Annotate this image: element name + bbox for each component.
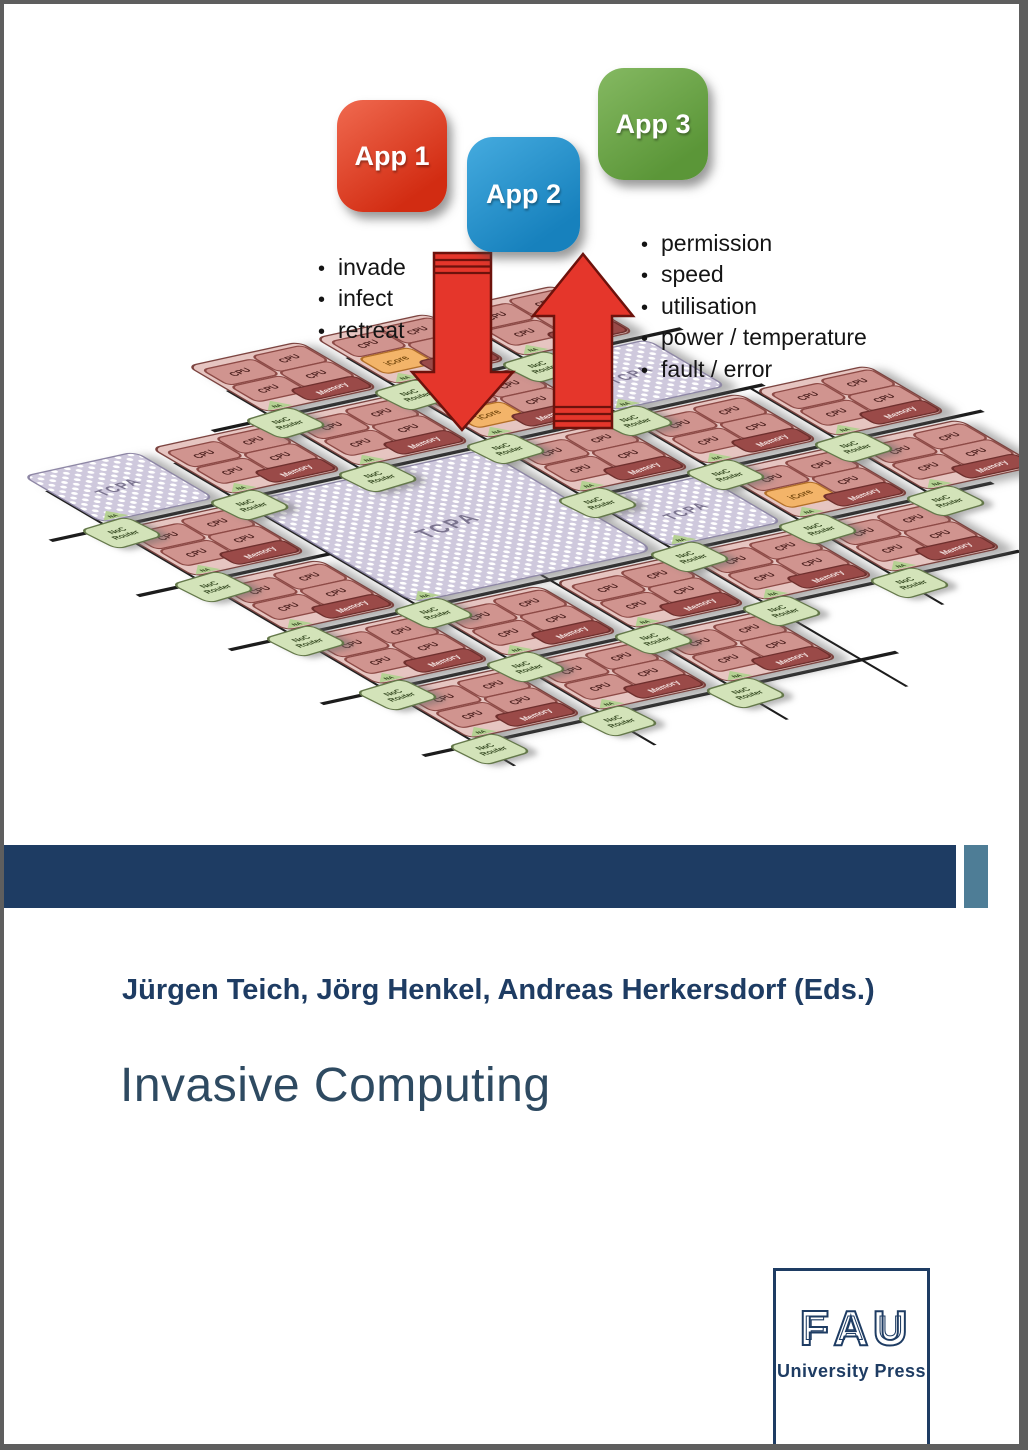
app1-label: App 1 <box>354 141 429 172</box>
app2-box: App 2 <box>467 137 580 252</box>
editors-line: Jürgen Teich, Jörg Henkel, Andreas Herke… <box>122 974 875 1007</box>
publisher-name: University Press <box>777 1361 926 1382</box>
legend-item: retreat <box>318 316 406 347</box>
noc-router: NoCRouter <box>702 676 789 710</box>
noc-router: NoCRouter <box>574 704 661 738</box>
publisher-logo-box: F A U F A U University Press <box>773 1268 930 1450</box>
tcpa-label: TCPA <box>409 511 488 542</box>
app3-label: App 3 <box>615 109 690 140</box>
tcpa-label: TCPA <box>91 476 147 498</box>
svg-text:F: F <box>804 1310 825 1348</box>
feedback-legend-list: permissionspeedutilisationpower / temper… <box>641 229 867 386</box>
app2-label: App 2 <box>486 179 561 210</box>
noc-router: NoCRouter <box>446 732 533 766</box>
noc-router: NoCRouter <box>866 566 953 600</box>
svg-text:U: U <box>877 1310 902 1348</box>
app1-box: App 1 <box>337 100 447 212</box>
legend-item: fault / error <box>641 355 867 386</box>
legend-item: utilisation <box>641 292 867 323</box>
legend-item: speed <box>641 260 867 291</box>
svg-text:A: A <box>838 1310 863 1348</box>
legend-item: infect <box>318 284 406 315</box>
book-cover: CPUCPUCPUCPUMemoryNANoCRouterCPUiCoreCPU… <box>0 0 1028 1450</box>
tcpa-label: TCPA <box>659 500 715 522</box>
legend-item: invade <box>318 253 406 284</box>
invade-legend-list: invadeinfectretreat <box>318 253 406 347</box>
teal-band <box>964 845 988 908</box>
navy-band <box>4 845 956 908</box>
book-title: Invasive Computing <box>120 1058 551 1113</box>
legend-item: permission <box>641 229 867 260</box>
legend-item: power / temperature <box>641 323 867 354</box>
fau-logo-icon: F A U F A U <box>792 1301 912 1357</box>
app3-box: App 3 <box>598 68 708 180</box>
